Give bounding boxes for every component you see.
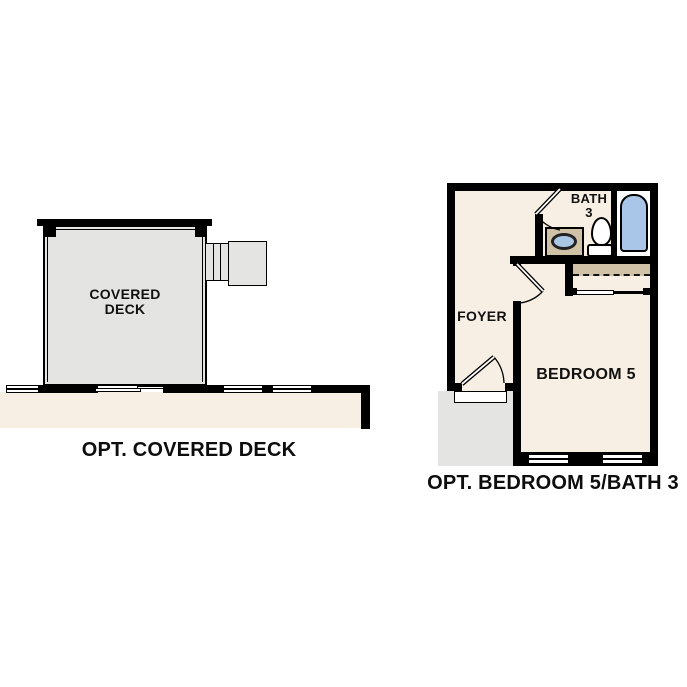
top-exterior-wall (447, 183, 658, 191)
deck-post-right (195, 226, 207, 237)
foyer-label: FOYER (452, 308, 512, 324)
bathtub (620, 194, 648, 252)
window (272, 385, 313, 393)
bath-label-line1: BATH (566, 192, 612, 206)
foyer-left-wall (447, 183, 455, 391)
covered-deck-label-line2: DECK (45, 302, 205, 317)
window (223, 385, 264, 393)
closet-bypass-doors (576, 290, 614, 295)
sink (551, 233, 577, 250)
wall-segment (361, 385, 370, 429)
bedroom-left-wall-corner (513, 256, 521, 266)
bath-label: BATH 3 (566, 192, 612, 220)
stair-tread-line (220, 244, 222, 280)
house-interior-floor (0, 392, 361, 428)
closet-front-wall-line (613, 291, 644, 294)
toilet (591, 217, 612, 246)
window (6, 385, 39, 393)
wall-segment (38, 385, 98, 393)
right-exterior-wall (650, 183, 658, 466)
door-threshold (454, 391, 507, 403)
bedroom-window (602, 454, 643, 464)
bedroom-left-wall (513, 301, 521, 452)
bedroom-label: BEDROOM 5 (521, 366, 651, 384)
bath-bottom-wall (510, 256, 658, 264)
bath-label-line2: 3 (566, 206, 612, 220)
left-plan-caption: OPT. COVERED DECK (19, 439, 359, 462)
deck-stair-landing (228, 241, 267, 286)
wall-segment (163, 385, 223, 393)
covered-deck-label-line1: COVERED (45, 287, 205, 302)
deck-stairs (205, 243, 229, 281)
closet-shelf-and-rod (573, 263, 650, 276)
sliding-door-panel (95, 388, 141, 392)
floorplan-canvas: COVERED DECK OPT. COVERED DECK BATH (0, 0, 687, 687)
stair-tread-line (213, 244, 215, 280)
toilet-tank (587, 244, 613, 257)
right-plan-caption: OPT. BEDROOM 5/BATH 3 (408, 472, 687, 495)
bedroom-window (528, 454, 569, 464)
deck-top-wall (37, 219, 212, 226)
closet-front-wall-right (643, 288, 658, 295)
foyer-bottom-wall-left (447, 383, 462, 391)
covered-deck-label: COVERED DECK (45, 287, 205, 317)
deck-post-left (44, 226, 56, 237)
